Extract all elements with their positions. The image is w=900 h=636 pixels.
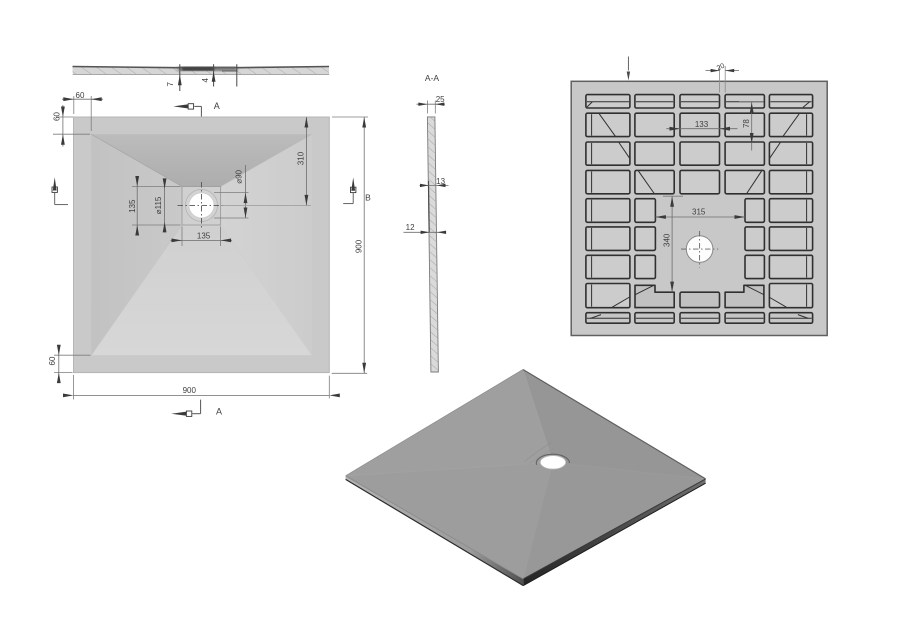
svg-text:315: 315 (692, 208, 706, 217)
svg-text:4: 4 (201, 77, 210, 82)
svg-text:900: 900 (354, 239, 363, 253)
svg-text:60: 60 (48, 356, 57, 365)
svg-text:900: 900 (183, 386, 197, 395)
svg-text:⌀90: ⌀90 (235, 169, 244, 183)
svg-text:60: 60 (53, 112, 62, 121)
svg-text:310: 310 (297, 151, 306, 165)
svg-text:A: A (216, 407, 222, 417)
svg-text:78: 78 (742, 119, 751, 128)
svg-text:135: 135 (128, 199, 137, 213)
svg-text:25: 25 (436, 95, 445, 104)
svg-text:12: 12 (406, 223, 415, 232)
svg-text:A: A (214, 101, 220, 111)
svg-text:135: 135 (197, 231, 211, 240)
svg-text:⌀115: ⌀115 (154, 196, 163, 214)
svg-text:60: 60 (76, 91, 85, 100)
svg-text:340: 340 (663, 233, 672, 247)
svg-text:B: B (365, 192, 371, 202)
svg-text:20: 20 (716, 63, 726, 73)
svg-text:133: 133 (695, 120, 709, 129)
svg-text:A-A: A-A (425, 73, 440, 83)
svg-text:13: 13 (436, 177, 445, 186)
svg-text:7: 7 (166, 81, 175, 86)
